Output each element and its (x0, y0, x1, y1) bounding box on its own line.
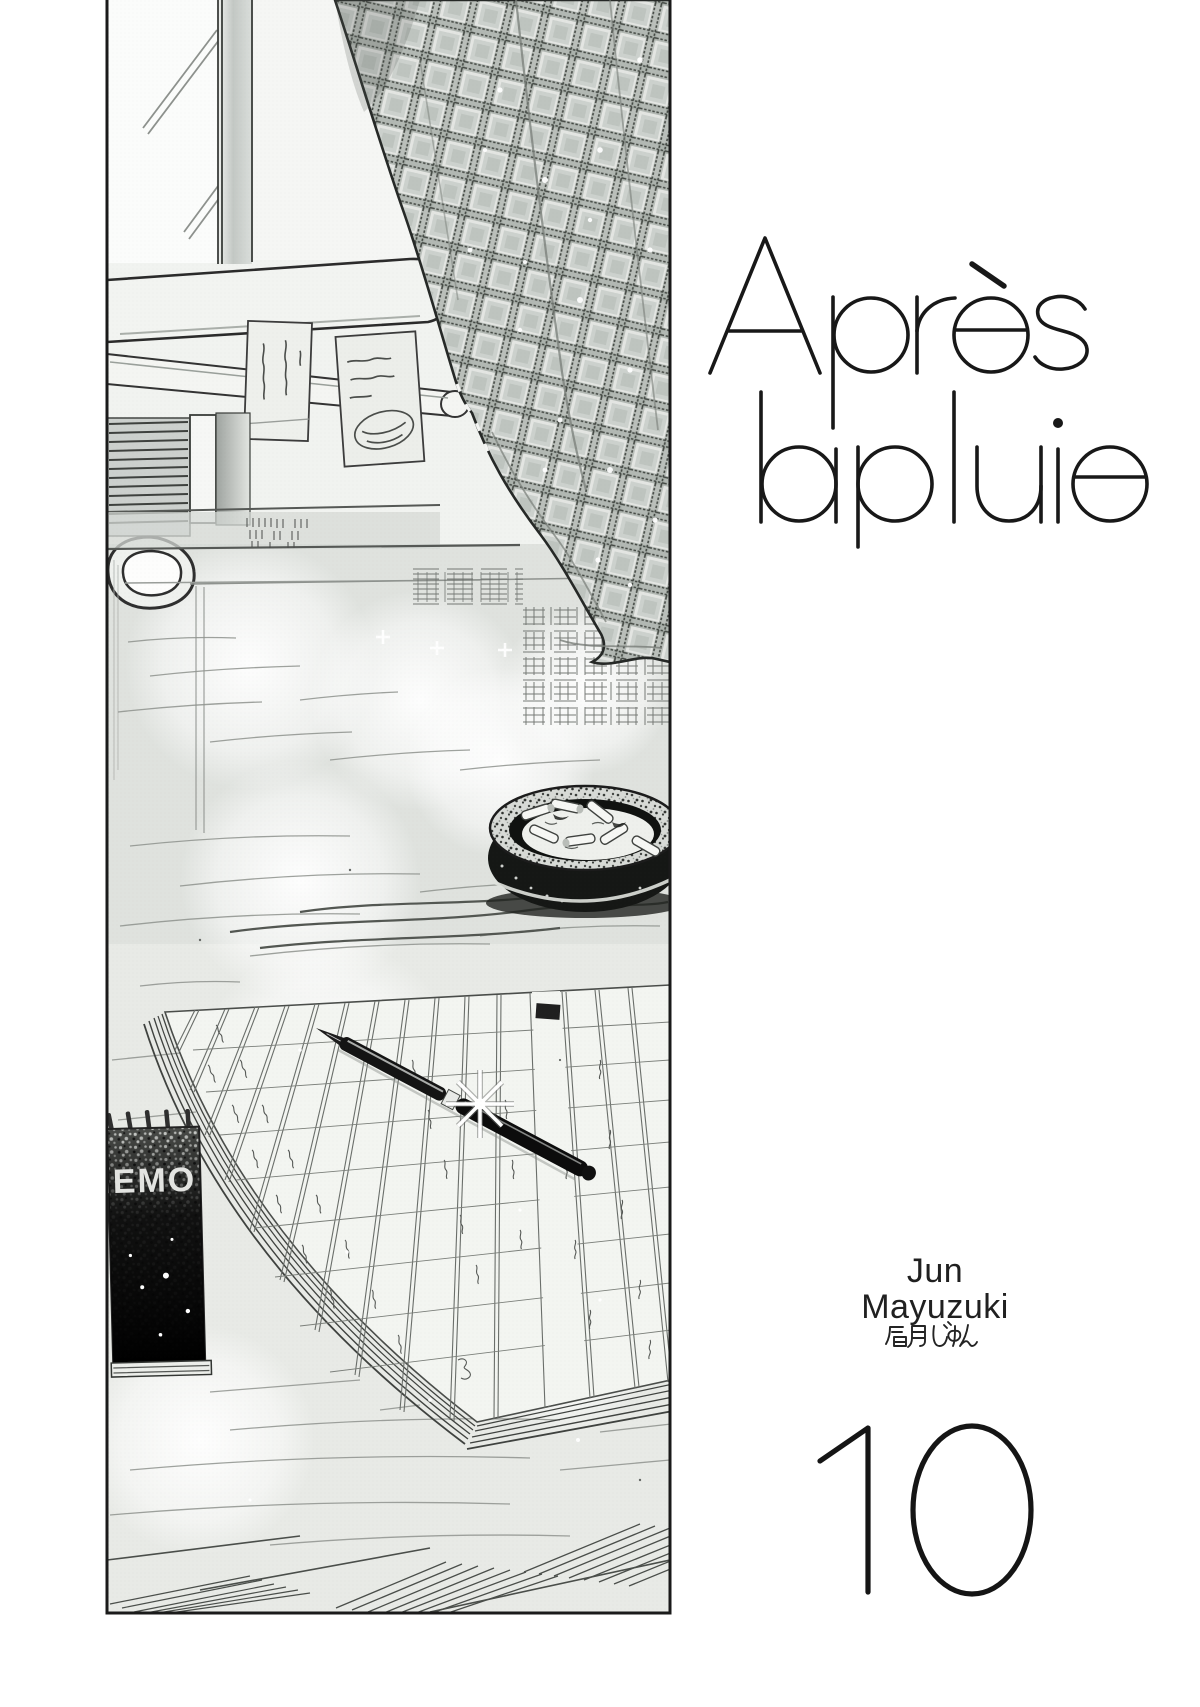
author-name-line1: Jun (907, 1252, 963, 1290)
series-title (710, 238, 1147, 547)
illustration-panel: MEMO (81, 0, 705, 1613)
page-artwork: MEMO (0, 0, 1200, 1707)
manga-title-page: Après la pluie 10 眉月じゅん (0, 0, 1200, 1707)
title-line-1 (710, 238, 1087, 428)
title-line-2 (761, 392, 1147, 547)
volume-number (820, 1426, 1031, 1594)
author-name-line2: Mayuzuki (861, 1288, 1009, 1326)
author-credit: Jun Mayuzuki (861, 1252, 1009, 1347)
